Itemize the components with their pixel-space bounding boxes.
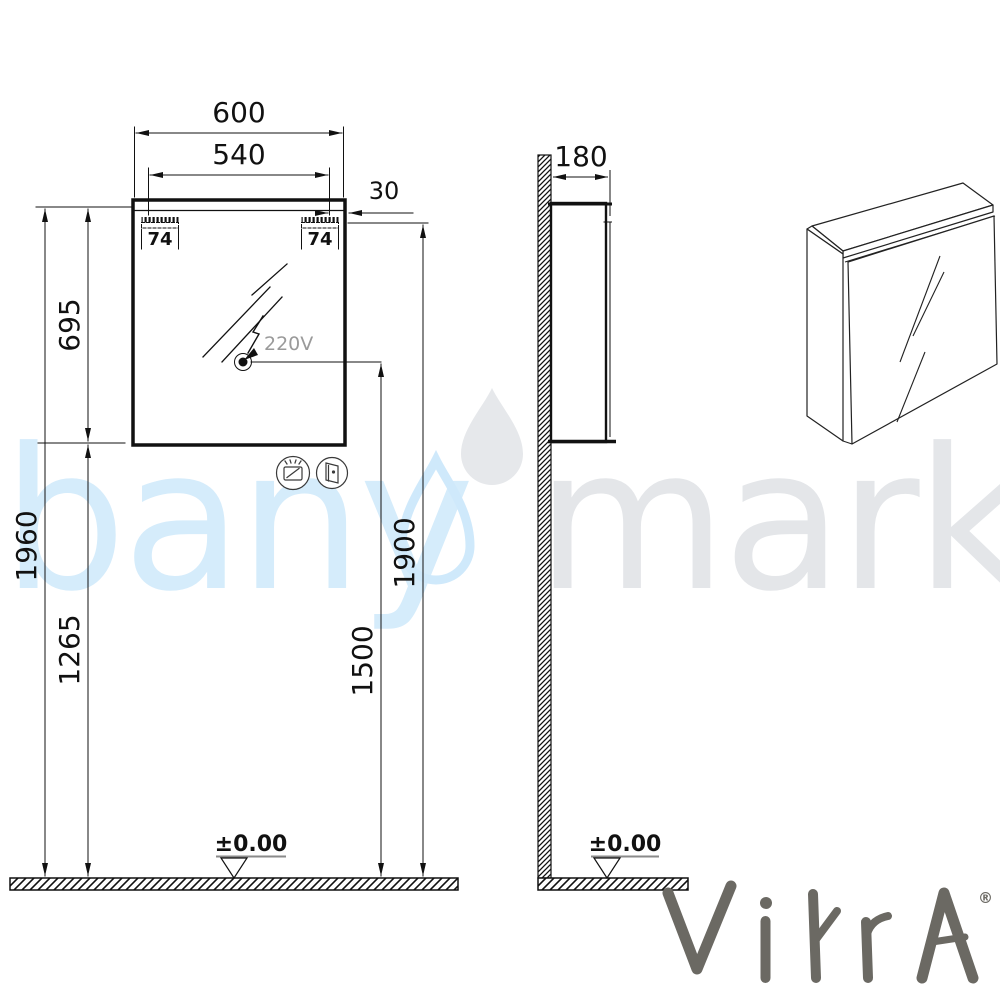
floor-level-marker-side: ±0.00 [589, 832, 662, 878]
dim-bracket-left-label: 74 [147, 229, 172, 250]
dim-depth-label: 180 [554, 140, 607, 173]
cabinet-3d-side-panel [807, 229, 843, 441]
socket-point [239, 358, 248, 367]
mounting-bracket-right [302, 217, 339, 228]
defogger-icon [277, 457, 310, 490]
dim-total-height-label: 1960 [10, 510, 43, 581]
floor-level-marker-front: ±0.00 [215, 832, 288, 878]
mirror-door-icon [317, 458, 348, 489]
registered-trademark: ® [978, 889, 993, 907]
dim-bracket-right-label: 74 [307, 229, 332, 250]
floor-level-side-label: ±0.00 [589, 832, 662, 857]
vitra-letter-i-dot [760, 897, 772, 909]
watermark-droplet-gray-icon [461, 388, 523, 485]
dim-cabinet-height-label: 695 [53, 298, 86, 351]
dim-floor-to-cabinet-label: 1265 [53, 614, 86, 685]
dim-socket-height-label: 1500 [346, 625, 379, 696]
dim-mirror-width-label: 540 [212, 138, 265, 171]
mounting-bracket-left [142, 217, 179, 228]
cabinet-side-profile [548, 203, 616, 442]
vitra-logo: VitrA ® [668, 886, 993, 978]
cabinet-3d-view [807, 183, 997, 444]
dim-total-width-label: 600 [212, 96, 265, 129]
dim-mount-height-label: 1900 [388, 517, 421, 588]
floor-front [10, 878, 458, 890]
floor-level-front-label: ±0.00 [215, 832, 288, 857]
technical-drawing-page: bany marka 74 74 [0, 0, 1000, 1000]
drawing-svg: bany marka 74 74 [0, 0, 1000, 1000]
wall-section [538, 155, 551, 878]
vitra-letter-v [668, 886, 731, 969]
dim-top-offset-label: 30 [369, 177, 400, 205]
socket-label: 220V [264, 333, 313, 355]
